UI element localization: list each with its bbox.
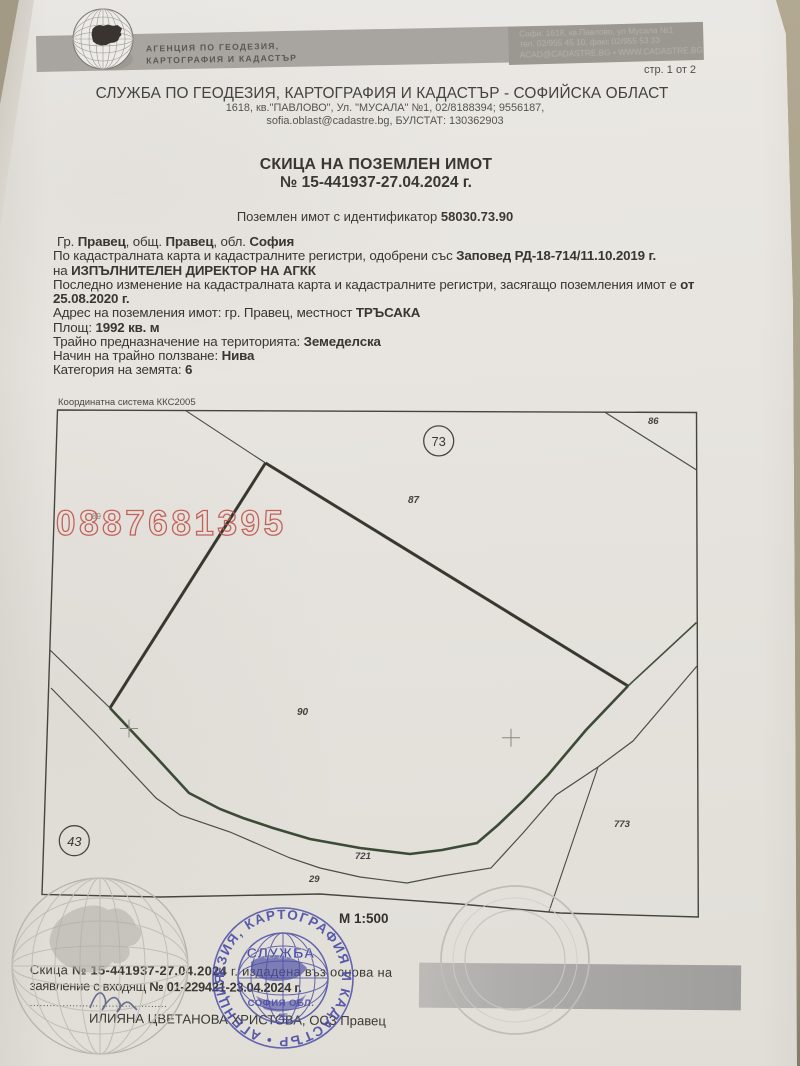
svg-text:90: 90 [297,707,309,718]
svg-text:43: 43 [67,834,82,849]
svg-text:86: 86 [648,416,659,427]
svg-text:73: 73 [431,434,445,449]
svg-text:29: 29 [308,874,320,885]
svg-text:СОФИЯ ОБЛ.: СОФИЯ ОБЛ. [248,998,315,1009]
svg-text:87: 87 [408,495,420,506]
svg-text:СЛУЖБА: СЛУЖБА [247,946,316,962]
svg-text:721: 721 [355,851,371,862]
svg-text:25: 25 [278,1012,288,1022]
svg-text:773: 773 [614,819,631,830]
